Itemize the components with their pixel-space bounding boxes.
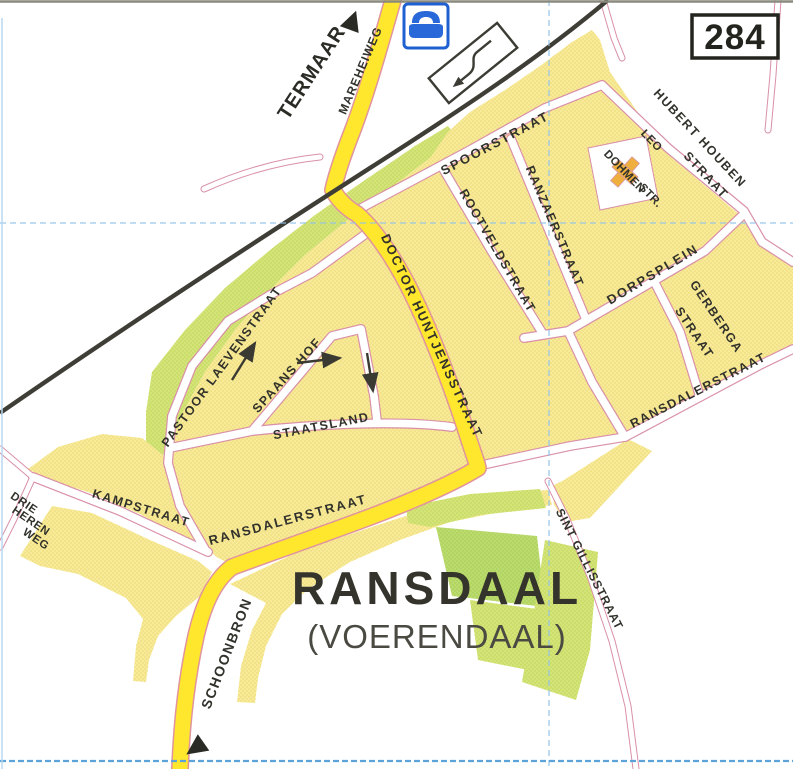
page-subtitle: (VOERENDAAL) (307, 618, 567, 655)
sheet-number: 284 (704, 18, 765, 57)
street-map-canvas: 284 TERMAAR MAREHEIWEG SPOORSTRAAT RANZA… (0, 0, 793, 769)
town-title: RANSDAAL (VOERENDAAL) (292, 562, 582, 655)
car-symbol-icon (404, 4, 448, 48)
page-title: RANSDAAL (292, 562, 582, 614)
sheet-number-box: 284 (692, 15, 778, 58)
street-map-page: 284 TERMAAR MAREHEIWEG SPOORSTRAAT RANZA… (0, 0, 793, 769)
